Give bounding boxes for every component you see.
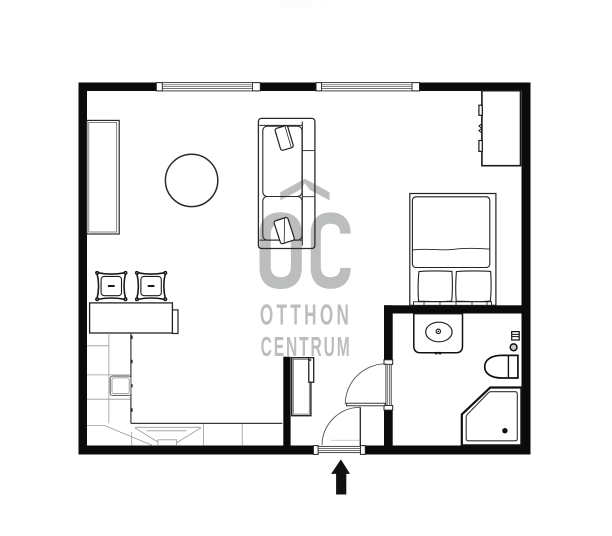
- svg-text:OTTHON: OTTHON: [260, 300, 352, 332]
